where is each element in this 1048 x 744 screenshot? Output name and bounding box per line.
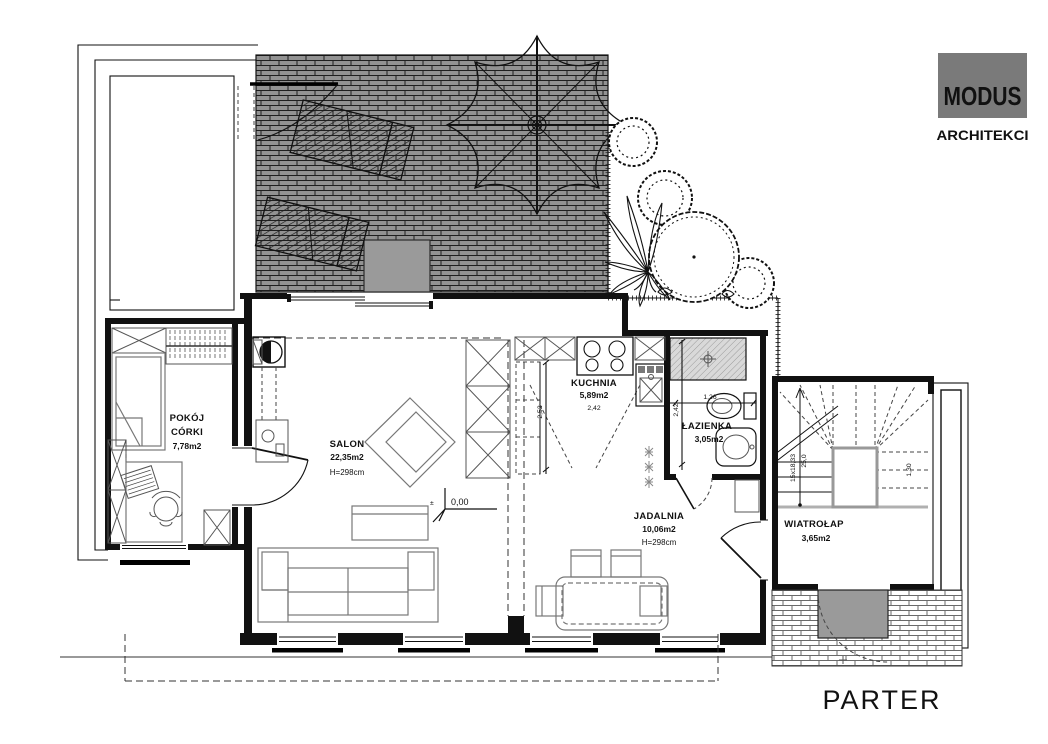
bed xyxy=(112,328,166,450)
room-name: WIATROŁAP xyxy=(784,519,844,530)
terrace-doormat xyxy=(364,240,430,292)
floor-plan-page: ± 0,00 xyxy=(0,0,1048,744)
room-height: H=298cm xyxy=(642,538,677,547)
stairs-dimension: 15x18,33 xyxy=(790,454,797,482)
room-area: 22,35m2 xyxy=(330,452,364,462)
level-sign: ± xyxy=(430,500,434,507)
dining-chair xyxy=(611,550,641,577)
window xyxy=(120,546,190,566)
level-marker: ± 0,00 xyxy=(430,488,497,522)
wood-stove-icon xyxy=(253,337,288,462)
door-swing xyxy=(676,473,712,509)
room-name: CÓRKI xyxy=(171,426,203,438)
logo-brand-text: MODUS xyxy=(944,81,1022,111)
stairs: 15x18,33 25,0 1,30 xyxy=(774,385,928,507)
sofa xyxy=(258,548,438,622)
spotlights xyxy=(645,446,653,488)
room-area: 3,05m2 xyxy=(695,434,724,444)
entry-doormat xyxy=(818,590,888,638)
desk-chair xyxy=(150,491,182,526)
page-title: PARTER xyxy=(822,685,941,715)
room-name: SALON xyxy=(330,439,365,450)
room-area: 10,06m2 xyxy=(642,524,676,534)
dining-chair xyxy=(571,550,601,577)
sink-icon xyxy=(636,364,666,406)
door-swing xyxy=(230,446,308,507)
kitchen-width-dim: 2,42 xyxy=(587,405,600,412)
window xyxy=(398,633,470,653)
dining-table xyxy=(556,577,668,630)
cooktop-icon xyxy=(577,337,633,375)
kitchen-depth-dim: 2,52 xyxy=(537,405,544,418)
room-label-kuchnia: KUCHNIA 5,89m2 2,42 xyxy=(571,378,617,412)
entrance-paving xyxy=(772,590,962,666)
room-label-pokoj: POKÓJ CÓRKI 7,78m2 xyxy=(170,412,205,451)
window xyxy=(655,633,725,653)
hall-closet xyxy=(735,480,759,512)
room-name: ŁAZIENKA xyxy=(682,421,732,432)
room-height: H=298cm xyxy=(330,468,365,477)
room-name: JADALNIA xyxy=(634,511,684,522)
bush-icon xyxy=(609,118,657,166)
side-bench xyxy=(352,506,428,540)
bath-depth-dim: 2,42 xyxy=(673,403,680,416)
brand-logo: MODUS ARCHITEKCI xyxy=(937,53,1029,143)
dining-chair xyxy=(536,586,563,616)
sliding-door xyxy=(287,293,433,309)
window xyxy=(272,633,343,653)
room-label-jadalnia: JADALNIA 10,06m2 H=298cm xyxy=(634,511,684,547)
room-label-wiatrolap: WIATROŁAP 3,65m2 xyxy=(784,519,844,543)
coffee-table xyxy=(365,398,455,487)
stairs-run-dimension: 25,0 xyxy=(801,454,808,467)
builtin-closet xyxy=(466,340,510,478)
room-name: KUCHNIA xyxy=(571,378,617,389)
room-area: 7,78m2 xyxy=(173,441,202,451)
bath-width-dim: 1,26 xyxy=(703,394,716,401)
room-area: 5,89m2 xyxy=(580,390,609,400)
floor-plan-canvas: ± 0,00 xyxy=(0,0,1048,744)
stairwell-opening xyxy=(833,448,877,507)
level-value: 0,00 xyxy=(451,497,469,507)
door-swing xyxy=(721,520,768,580)
gate-dashed xyxy=(238,86,254,140)
shower-icon xyxy=(670,338,746,380)
garden-lawn xyxy=(110,76,234,310)
room-area: 3,65m2 xyxy=(802,533,831,543)
stairs-width-dimension: 1,30 xyxy=(906,463,913,476)
trees xyxy=(604,118,774,308)
window xyxy=(525,633,598,653)
room-name: POKÓJ xyxy=(170,412,205,424)
desk xyxy=(121,462,182,542)
wardrobe xyxy=(166,328,232,364)
chimney-shaft xyxy=(204,510,230,545)
room-label-salon: SALON 22,35m2 H=298cm xyxy=(330,439,365,477)
logo-subtitle-text: ARCHITEKCI xyxy=(937,127,1029,143)
dining-chair xyxy=(640,586,667,616)
